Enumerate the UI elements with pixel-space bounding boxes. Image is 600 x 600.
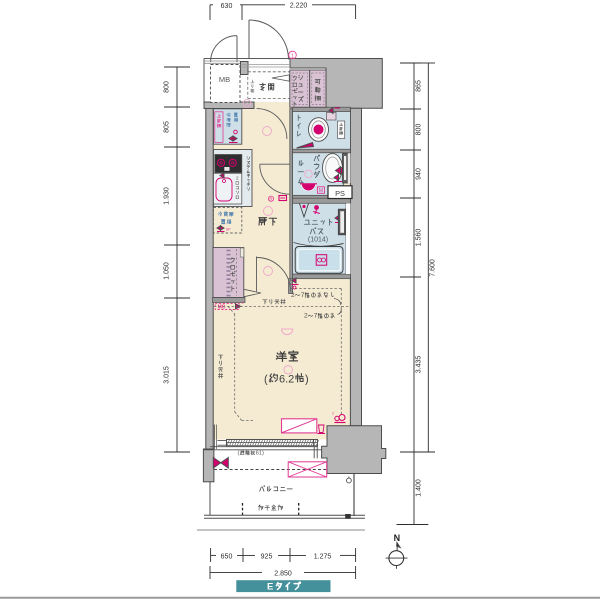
- svg-text:MC: MC: [218, 304, 226, 310]
- svg-text:800: 800: [416, 124, 423, 136]
- svg-text:2.850: 2.850: [274, 571, 292, 578]
- svg-text:925: 925: [261, 553, 273, 560]
- svg-text:2.220: 2.220: [290, 3, 308, 10]
- svg-text:4: 4: [242, 301, 244, 305]
- svg-text:E: E: [267, 582, 273, 593]
- svg-text:800: 800: [164, 81, 171, 93]
- svg-text:7.600: 7.600: [430, 259, 437, 277]
- svg-text:865: 865: [416, 80, 423, 92]
- svg-text:MB: MB: [219, 75, 230, 84]
- svg-text:61): 61): [256, 451, 264, 457]
- svg-text:7: 7: [301, 292, 305, 299]
- svg-text:1.050: 1.050: [164, 262, 171, 280]
- svg-text:1.560: 1.560: [416, 229, 423, 247]
- svg-text:PS: PS: [335, 189, 345, 198]
- svg-text:7: 7: [314, 313, 318, 320]
- svg-text:N: N: [394, 533, 401, 543]
- svg-text:1.930: 1.930: [164, 187, 171, 205]
- svg-text:3.435: 3.435: [416, 356, 423, 374]
- svg-text:940: 940: [416, 168, 423, 180]
- svg-text:3.015: 3.015: [164, 366, 171, 384]
- svg-text:M: M: [319, 188, 323, 194]
- svg-text:1.400: 1.400: [416, 479, 423, 497]
- svg-text:(: (: [264, 374, 268, 386]
- svg-text:650: 650: [221, 553, 233, 560]
- svg-text:2: 2: [332, 412, 334, 416]
- svg-text:1.275: 1.275: [314, 553, 332, 560]
- svg-text:2: 2: [291, 292, 295, 299]
- svg-text:): ): [305, 374, 309, 386]
- svg-text:2: 2: [236, 176, 239, 181]
- svg-text:(: (: [238, 451, 240, 457]
- svg-text:2: 2: [304, 313, 308, 320]
- svg-text:(1014): (1014): [308, 237, 328, 244]
- svg-text:6P: 6P: [226, 228, 231, 232]
- svg-text:805: 805: [164, 121, 171, 133]
- svg-text:R: R: [269, 197, 272, 202]
- svg-text:1: 1: [291, 53, 294, 59]
- svg-text:630: 630: [221, 3, 233, 10]
- svg-text:6.2: 6.2: [279, 374, 294, 386]
